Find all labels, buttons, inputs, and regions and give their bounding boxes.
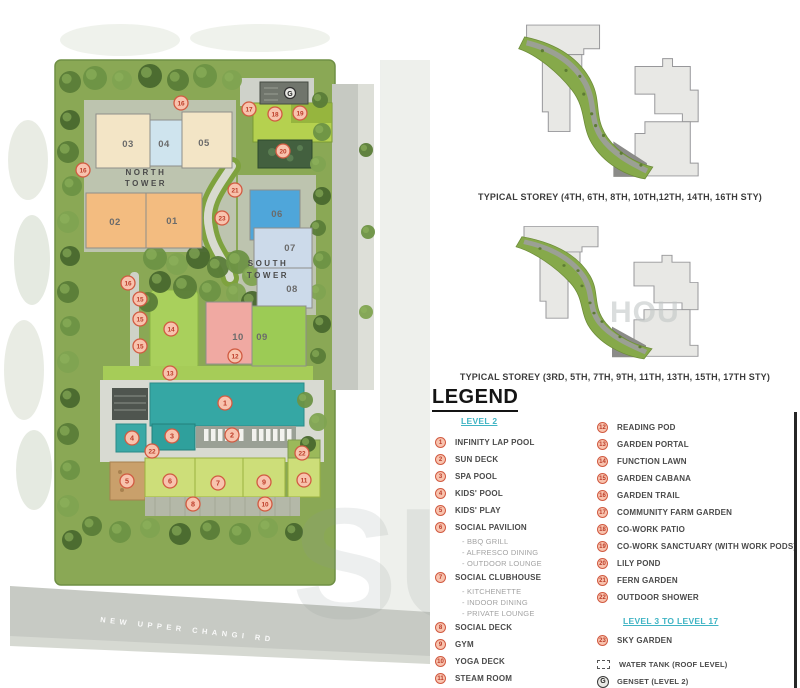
svg-text:16: 16 (177, 101, 185, 108)
svg-text:13: 13 (166, 371, 174, 378)
typical-storey-diagram-1 (497, 14, 710, 186)
svg-text:16: 16 (79, 168, 87, 175)
plan-marker-16: 16 (76, 163, 90, 177)
legend-item-label: SUN DECK (455, 455, 498, 464)
unit-label: 04 (158, 139, 170, 150)
tower-label: SOUTH (248, 259, 289, 268)
legend-item-number: 15 (597, 473, 608, 484)
plan-marker-16: 16 (174, 96, 188, 110)
legend-item-label: SOCIAL CLUBHOUSE (455, 573, 541, 582)
legend-item-label: GARDEN TRAIL (617, 491, 680, 500)
legend-item-label: INFINITY LAP POOL (455, 438, 535, 447)
legend-item-label: YOGA DECK (455, 657, 505, 666)
plan-marker-3: 3 (165, 429, 179, 443)
unit-09: 09 (252, 306, 306, 366)
plan-marker-1: 1 (218, 396, 232, 410)
legend-item: 17COMMUNITY FARM GARDEN (597, 504, 798, 521)
storey-caption-2: TYPICAL STOREY (3RD, 5TH, 7TH, 9TH, 11TH… (425, 372, 800, 382)
svg-text:22: 22 (298, 451, 306, 458)
legend-item: 7SOCIAL CLUBHOUSE (435, 569, 597, 586)
legend-title: LEGEND (432, 386, 518, 412)
legend-item-label: FUNCTION LAWN (617, 457, 687, 466)
legend-item-number: 22 (597, 592, 608, 603)
unit-01: 01 (146, 193, 202, 248)
legend-sub-item: - BBQ GRILL (462, 536, 597, 547)
map-watermark: SU (292, 476, 430, 652)
plan-marker-4: 4 (125, 431, 139, 445)
legend-item-number: 14 (597, 456, 608, 467)
legend-item: 21FERN GARDEN (597, 572, 798, 589)
unit-label: 07 (284, 243, 296, 254)
legend-item-number: 23 (597, 635, 608, 646)
plan-marker-8: 8 (186, 497, 200, 511)
legend: LEGEND (432, 386, 798, 412)
plan-marker-22: 22 (295, 446, 309, 460)
svg-text:6: 6 (168, 477, 172, 486)
photo-edge-artifact (794, 412, 797, 688)
svg-text:22: 22 (148, 449, 156, 456)
svg-text:1: 1 (223, 399, 227, 408)
svg-text:20: 20 (279, 149, 287, 156)
legend-item-number: 4 (435, 488, 446, 499)
legend-item-number: 2 (435, 454, 446, 465)
plan-marker-20: 20 (276, 144, 290, 158)
site-plan-map: G (0, 0, 430, 688)
legend-item-label: GARDEN CABANA (617, 474, 691, 483)
plan-marker-19: 19 (293, 106, 307, 120)
unit-03: 03 (96, 114, 150, 168)
legend-item-number: 3 (435, 471, 446, 482)
svg-text:19: 19 (296, 111, 304, 118)
plan-marker-16: 16 (121, 276, 135, 290)
legend-item-number: 5 (435, 505, 446, 516)
legend-sub-item: - INDOOR DINING (462, 597, 597, 608)
legend-item: 2SUN DECK (435, 451, 597, 468)
plan-marker-6: 6 (163, 474, 177, 488)
right-watermark: HOU (610, 296, 680, 330)
legend-item: 23SKY GARDEN (597, 632, 798, 649)
svg-text:16: 16 (124, 281, 132, 288)
plan-marker-5: 5 (120, 474, 134, 488)
legend-item: 9GYM (435, 636, 597, 653)
unit-05: 05 (182, 112, 232, 168)
legend-item: 10YOGA DECK (435, 653, 597, 670)
legend-sub-item: - ALFRESCO DINING (462, 547, 597, 558)
legend-item-number: 8 (435, 622, 446, 633)
legend-item: 5KIDS' PLAY (435, 502, 597, 519)
legend-item-label: FERN GARDEN (617, 576, 678, 585)
feature-wall (112, 388, 148, 420)
legend-item-number: 1 (435, 437, 446, 448)
legend-item: 11STEAM ROOM (435, 670, 597, 687)
svg-text:8: 8 (191, 500, 195, 509)
svg-text:3: 3 (170, 432, 174, 441)
plan-marker-11: 11 (297, 473, 311, 487)
legend-item: 8SOCIAL DECK (435, 619, 597, 636)
legend-symbol-label: WATER TANK (ROOF LEVEL) (619, 660, 727, 669)
site-plan-page: G (0, 0, 800, 688)
plan-marker-18: 18 (268, 107, 282, 121)
legend-item-label: SPA POOL (455, 472, 497, 481)
legend-item: 19CO-WORK SANCTUARY (WITH WORK PODS) (597, 538, 798, 555)
legend-item-label: GARDEN PORTAL (617, 440, 689, 449)
legend-item-label: COMMUNITY FARM GARDEN (617, 508, 732, 517)
plan-marker-12: 12 (228, 349, 242, 363)
legend-item: 20LILY POND (597, 555, 798, 572)
tower-label: NORTH (126, 168, 167, 177)
legend-item-number: 21 (597, 575, 608, 586)
legend-symbols: WATER TANK (ROOF LEVEL)GGENSET (LEVEL 2) (597, 656, 798, 688)
legend-item-number: 11 (435, 673, 446, 684)
unit-04: 04 (150, 120, 182, 166)
unit-label: 03 (122, 139, 134, 150)
svg-text:7: 7 (216, 479, 220, 488)
plan-marker-23: 23 (215, 211, 229, 225)
legend-item: 16GARDEN TRAIL (597, 487, 798, 504)
svg-text:11: 11 (301, 478, 308, 485)
unit-label: 09 (256, 332, 268, 343)
legend-item: 1INFINITY LAP POOL (435, 434, 597, 451)
svg-text:2: 2 (230, 431, 234, 440)
svg-text:18: 18 (271, 112, 279, 119)
legend-item: 6SOCIAL PAVILION (435, 519, 597, 536)
legend-item-label: SKY GARDEN (617, 636, 672, 645)
svg-text:23: 23 (218, 216, 226, 223)
legend-symbol-row: WATER TANK (ROOF LEVEL) (597, 656, 798, 673)
plan-marker-10: 10 (258, 497, 272, 511)
unit-label: 06 (271, 209, 283, 220)
legend-item-label: KIDS' PLAY (455, 506, 501, 515)
plan-marker-21: 21 (228, 183, 242, 197)
genset-icon: G (597, 676, 609, 688)
legend-item-number: 17 (597, 507, 608, 518)
plan-marker-22: 22 (145, 444, 159, 458)
unit-label: 01 (166, 216, 178, 227)
legend-column-right: 12READING POD13GARDEN PORTAL14FUNCTION L… (597, 419, 798, 688)
tower-label: TOWER (247, 271, 289, 280)
storey-caption-1: TYPICAL STOREY (4TH, 6TH, 8TH, 10TH,12TH… (440, 192, 800, 202)
svg-text:5: 5 (125, 477, 129, 486)
legend-item-number: 9 (435, 639, 446, 650)
svg-text:15: 15 (136, 297, 144, 304)
legend-symbol-row: GGENSET (LEVEL 2) (597, 673, 798, 688)
legend-item: 14FUNCTION LAWN (597, 453, 798, 470)
legend-item-number: 10 (435, 656, 446, 667)
plan-marker-2: 2 (225, 428, 239, 442)
legend-item-label: KIDS' POOL (455, 489, 503, 498)
legend-item-number: 20 (597, 558, 608, 569)
unit-02: 02 (86, 193, 146, 248)
legend-sub-item: - KITCHENETTE (462, 586, 597, 597)
plan-marker-15: 15 (133, 292, 147, 306)
water-tank-icon (597, 660, 610, 669)
plan-marker-15: 15 (133, 339, 147, 353)
plan-marker-13: 13 (163, 366, 177, 380)
tower-label: TOWER (125, 179, 167, 188)
svg-text:21: 21 (231, 188, 239, 195)
legend-section-header: LEVEL 2 (461, 414, 597, 434)
legend-item: 13GARDEN PORTAL (597, 436, 798, 453)
svg-text:12: 12 (231, 354, 239, 361)
legend-item-label: OUTDOOR SHOWER (617, 593, 699, 602)
svg-text:4: 4 (130, 434, 134, 443)
unit-label: 08 (286, 284, 298, 295)
legend-item-number: 12 (597, 422, 608, 433)
svg-text:15: 15 (136, 344, 144, 351)
legend-section-header: LEVEL 3 TO LEVEL 17 (623, 614, 798, 632)
legend-item-number: 16 (597, 490, 608, 501)
legend-sub-item: - PRIVATE LOUNGE (462, 608, 597, 619)
legend-sub-item: - OUTDOOR LOUNGE (462, 558, 597, 569)
svg-text:10: 10 (261, 502, 269, 509)
legend-item: 3SPA POOL (435, 468, 597, 485)
legend-item-label: STEAM ROOM (455, 674, 512, 683)
legend-item-label: SOCIAL PAVILION (455, 523, 527, 532)
plan-marker-7: 7 (211, 476, 225, 490)
side-road (332, 84, 358, 390)
legend-item: 18CO-WORK PATIO (597, 521, 798, 538)
legend-item-number: 18 (597, 524, 608, 535)
typical-storey-diagram-2 (494, 218, 710, 364)
legend-item: 22OUTDOOR SHOWER (597, 589, 798, 606)
legend-item-label: SOCIAL DECK (455, 623, 512, 632)
legend-item-label: LILY POND (617, 559, 661, 568)
svg-text:9: 9 (262, 478, 266, 487)
legend-item: 12READING POD (597, 419, 798, 436)
legend-item-label: READING POD (617, 423, 676, 432)
legend-item-number: 7 (435, 572, 446, 583)
plan-marker-15: 15 (133, 312, 147, 326)
unit-label: 02 (109, 217, 121, 228)
legend-item-label: CO-WORK PATIO (617, 525, 685, 534)
unit-label: 05 (198, 138, 210, 149)
legend-item: 4KIDS' POOL (435, 485, 597, 502)
legend-item-number: 6 (435, 522, 446, 533)
legend-item-label: GYM (455, 640, 474, 649)
legend-symbol-label: GENSET (LEVEL 2) (617, 677, 688, 686)
plan-marker-9: 9 (257, 475, 271, 489)
legend-item-number: 13 (597, 439, 608, 450)
legend-column-left: LEVEL 21INFINITY LAP POOL2SUN DECK3SPA P… (435, 414, 597, 687)
legend-item-label: CO-WORK SANCTUARY (WITH WORK PODS) (617, 542, 796, 551)
plan-marker-14: 14 (164, 322, 178, 336)
svg-text:15: 15 (136, 317, 144, 324)
legend-item-number: 19 (597, 541, 608, 552)
svg-text:14: 14 (167, 327, 175, 334)
unit-label: 10 (232, 332, 244, 343)
genset-symbol-label: G (287, 91, 293, 98)
plan-marker-17: 17 (242, 102, 256, 116)
svg-text:17: 17 (245, 107, 253, 114)
social-deck (145, 497, 300, 516)
legend-item: 15GARDEN CABANA (597, 470, 798, 487)
